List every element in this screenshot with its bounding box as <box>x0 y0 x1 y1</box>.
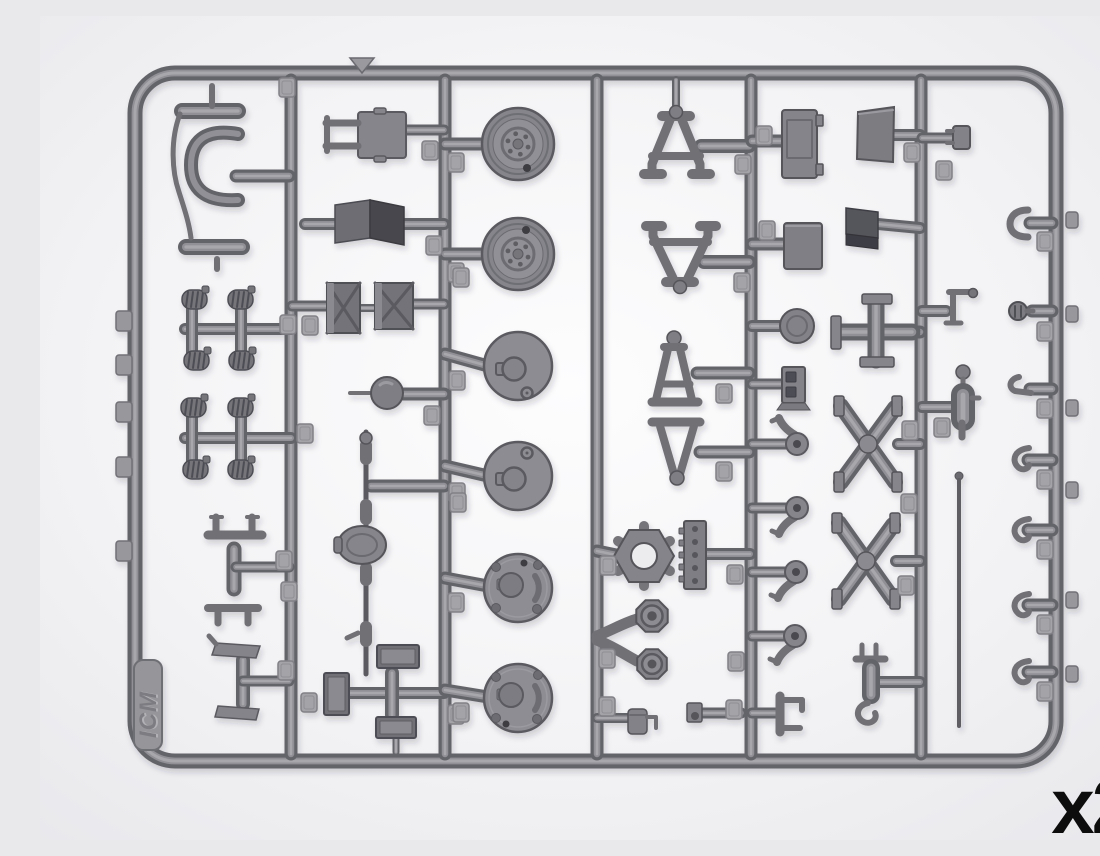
sprue-stub <box>878 224 920 228</box>
part-number-tab <box>278 661 294 680</box>
sprue-stub <box>445 578 488 586</box>
outer-edge-tab <box>1066 212 1078 228</box>
brake-drum <box>484 554 552 622</box>
flat-disc <box>780 309 814 343</box>
brake-drum <box>484 664 552 732</box>
part-number-tab <box>734 273 750 292</box>
outer-edge-tab <box>116 541 132 561</box>
part-number-tab <box>422 141 438 160</box>
outer-edge-tab <box>116 355 132 375</box>
outer-edge-tab <box>1066 482 1078 498</box>
part-number-tab <box>449 371 465 390</box>
floor-tray <box>376 717 416 738</box>
radio-crate <box>782 110 823 178</box>
part-number-tab <box>297 424 313 443</box>
part-number-tab <box>301 693 317 712</box>
part-number-tab <box>728 652 744 671</box>
part-number-tab <box>716 462 732 481</box>
part-number-tab <box>1037 682 1053 701</box>
part-number-tab <box>759 221 775 240</box>
pedal-box <box>777 367 810 410</box>
part-number-tab <box>756 126 772 145</box>
floor-tray <box>377 645 419 668</box>
part-number-tab <box>1037 399 1053 418</box>
part-number-tab <box>1037 322 1053 341</box>
part-number-tab <box>726 700 742 719</box>
part-number-tab <box>426 236 442 255</box>
part-number-tab <box>898 576 914 595</box>
sprue-stub <box>445 690 488 697</box>
part-number-tab <box>280 315 296 334</box>
square-box <box>784 223 822 269</box>
part-number-tab <box>302 316 318 335</box>
outer-edge-tab <box>116 402 132 422</box>
part-number-tab <box>600 556 616 575</box>
part-number-tab <box>453 268 469 287</box>
windshield-plate <box>857 107 894 162</box>
part-number-tab <box>901 494 917 513</box>
brake-backing-plate <box>484 442 552 510</box>
pulley <box>636 600 667 631</box>
sprue-image: ICM ICM x2 <box>40 16 1100 840</box>
floor-tray <box>324 673 349 715</box>
part-number-tab <box>599 697 615 716</box>
pulley <box>637 649 667 679</box>
part-number-tab <box>1037 232 1053 251</box>
wedge-box <box>335 200 404 245</box>
part-number-tab <box>424 406 440 425</box>
outer-edge-tab <box>1066 306 1078 322</box>
outer-edge-tab <box>1066 400 1078 416</box>
part-number-tab <box>934 418 950 437</box>
part-number-tab <box>453 703 469 722</box>
brake-backing-plate <box>484 332 552 400</box>
outer-edge-tab <box>1066 592 1078 608</box>
icm-logo-text: ICM <box>135 691 162 738</box>
part-number-tab <box>448 153 464 172</box>
engine-block-strip <box>679 521 706 589</box>
part-number-tab <box>448 593 464 612</box>
outer-edge-tab <box>116 457 132 477</box>
part-number-tab <box>450 493 466 512</box>
road-wheel <box>482 218 554 290</box>
part-number-tab <box>904 143 920 162</box>
crate-box <box>375 283 413 329</box>
dark-box <box>846 208 878 249</box>
part-number-tab <box>1037 615 1053 634</box>
road-wheel <box>482 108 554 180</box>
part-number-tab <box>716 384 732 403</box>
part-number-tab <box>1037 470 1053 489</box>
part-number-tab <box>599 649 615 668</box>
part-number-tab <box>279 78 295 97</box>
part-number-tab <box>281 582 297 601</box>
part-number-tab <box>276 551 292 570</box>
outer-edge-tab <box>116 311 132 331</box>
part-number-tab <box>727 565 743 584</box>
icm-logo: ICM ICM <box>135 691 164 738</box>
part-number-tab <box>902 421 918 440</box>
crate-box <box>327 283 360 333</box>
part-number-tab <box>936 161 952 180</box>
sprue-photo: ICM ICM x2 <box>40 16 1100 840</box>
eye-bracket <box>687 703 702 722</box>
part-number-tab <box>735 155 751 174</box>
part-number-tab <box>1037 540 1053 559</box>
quantity-label: x2 <box>1051 762 1100 840</box>
outer-edge-tab <box>1066 666 1078 682</box>
